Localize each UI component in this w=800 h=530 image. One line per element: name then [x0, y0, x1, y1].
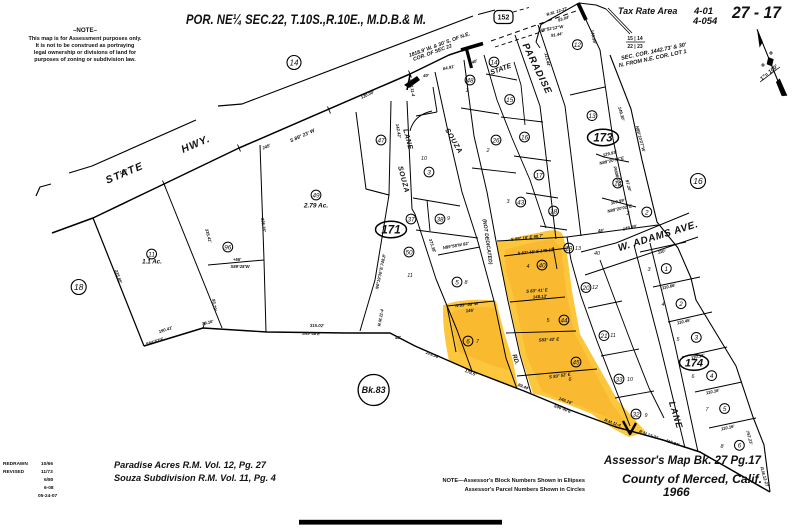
svg-text:40: 40	[594, 251, 600, 257]
svg-text:5: 5	[723, 406, 727, 413]
svg-text:8: 8	[721, 444, 724, 450]
svg-text:Bk.83: Bk.83	[362, 385, 386, 395]
svg-text:37: 37	[407, 216, 415, 223]
svg-text:Assessor's Map Bk. 27 Pg.17: Assessor's Map Bk. 27 Pg.17	[603, 453, 762, 467]
svg-text:12: 12	[574, 42, 582, 49]
svg-text:S89°28'W: S89°28'W	[230, 264, 250, 269]
svg-text:47: 47	[377, 137, 385, 144]
svg-text:315.02': 315.02'	[310, 323, 325, 328]
svg-text:3: 3	[648, 267, 651, 273]
svg-text:–NOTE–: –NOTE–	[73, 27, 98, 34]
svg-text:17: 17	[535, 172, 543, 179]
svg-text:16: 16	[693, 176, 703, 186]
svg-text:1: 1	[665, 266, 669, 273]
svg-text:2: 2	[486, 148, 490, 154]
svg-text:33: 33	[615, 376, 623, 383]
svg-text:173: 173	[593, 133, 613, 145]
svg-text:It is not to be construed as p: It is not to be construed as portraying	[36, 43, 135, 49]
svg-text:22 | 23: 22 | 23	[627, 44, 643, 50]
svg-text:40': 40'	[422, 73, 430, 78]
svg-text:43: 43	[517, 199, 525, 206]
svg-text:13: 13	[588, 113, 596, 120]
svg-text:9: 9	[645, 413, 648, 419]
svg-text:15: 15	[506, 97, 514, 104]
svg-text:21: 21	[599, 333, 608, 340]
svg-text:6/80: 6/80	[44, 477, 54, 483]
svg-text:26: 26	[491, 137, 500, 144]
svg-text:50: 50	[405, 249, 413, 256]
svg-text:4: 4	[662, 302, 665, 308]
svg-text:NOTE—Assessor's Block Numbers: NOTE—Assessor's Block Numbers Shown in E…	[443, 478, 585, 484]
svg-text:15 | 14: 15 | 14	[627, 36, 643, 42]
svg-text:2: 2	[626, 211, 630, 217]
svg-text:5: 5	[455, 279, 459, 286]
svg-text:Assessor's Parcel Numbers Show: Assessor's Parcel Numbers Shown in Circl…	[465, 487, 585, 493]
svg-text:Souza Subdivision R.M. Vol.: Souza Subdivision R.M. Vol. 11, Pg. 4	[114, 473, 276, 483]
svg-text:48: 48	[466, 77, 474, 84]
svg-text:13: 13	[575, 246, 581, 252]
svg-text:REDRAWN: REDRAWN	[3, 461, 28, 467]
svg-text:2: 2	[678, 301, 683, 308]
svg-text:2: 2	[644, 209, 649, 216]
svg-text:32: 32	[632, 411, 640, 418]
svg-text:POR. NE¼ SEC.22, T.10S.,R.10E.: POR. NE¼ SEC.22, T.10S.,R.10E., M.D.B.& …	[186, 11, 426, 27]
svg-text:4: 4	[710, 373, 714, 380]
svg-text:3: 3	[427, 169, 431, 176]
svg-text:40: 40	[538, 262, 546, 269]
svg-text:10/66: 10/66	[41, 461, 53, 467]
svg-text:6: 6	[738, 443, 742, 450]
svg-text:1: 1	[466, 88, 469, 94]
svg-text:11/73: 11/73	[41, 469, 53, 475]
svg-text:Paradise Acres R.M. Vol. 12,: Paradise Acres R.M. Vol. 12, Pg. 27	[114, 460, 267, 470]
svg-text:County of Merced, Calif.: County of Merced, Calif.	[622, 472, 762, 486]
svg-text:48': 48'	[394, 335, 402, 340]
svg-text:legal ownership or divisions o: legal ownership or divisions of land for	[34, 50, 137, 56]
svg-text:20: 20	[581, 285, 590, 292]
svg-text:05-24-07: 05-24-07	[38, 493, 58, 499]
svg-text:8: 8	[465, 280, 468, 286]
svg-text:This map is for Assessment pur: This map is for Assessment purposes only…	[28, 36, 142, 42]
svg-text:12: 12	[592, 285, 598, 291]
svg-text:1966: 1966	[663, 485, 690, 499]
svg-text:+55': +55'	[233, 257, 242, 262]
svg-text:10: 10	[627, 377, 633, 383]
svg-text:148.13': 148.13'	[533, 293, 548, 299]
svg-text:S49°48'E: S49°48'E	[302, 331, 320, 336]
svg-text:16: 16	[521, 134, 529, 141]
svg-text:1.1 Ac.: 1.1 Ac.	[142, 259, 162, 266]
svg-text:11: 11	[148, 251, 155, 258]
svg-text:6: 6	[692, 374, 695, 380]
svg-text:49: 49	[312, 192, 320, 199]
svg-text:6: 6	[569, 377, 572, 383]
svg-text:18: 18	[74, 282, 84, 292]
svg-text:27 - 17: 27 - 17	[731, 4, 782, 22]
svg-text:38: 38	[436, 216, 444, 223]
svg-text:3: 3	[695, 335, 699, 342]
svg-text:6-08: 6-08	[44, 485, 54, 491]
svg-text:REVISED: REVISED	[3, 469, 25, 475]
svg-text:9: 9	[447, 216, 450, 222]
svg-text:2.79 Ac.: 2.79 Ac.	[303, 203, 329, 210]
svg-text:10: 10	[421, 156, 427, 162]
svg-text:44: 44	[560, 317, 568, 324]
svg-text:171: 171	[381, 225, 400, 237]
svg-text:96: 96	[224, 244, 232, 251]
svg-text:4: 4	[527, 264, 530, 270]
svg-text:146': 146'	[466, 307, 476, 313]
svg-text:45: 45	[572, 359, 580, 366]
svg-text:14: 14	[290, 58, 299, 67]
svg-text:Tax Rate Area: Tax Rate Area	[618, 6, 677, 16]
svg-text:18: 18	[550, 208, 558, 215]
svg-text:152: 152	[498, 15, 510, 22]
svg-text:11: 11	[407, 273, 413, 279]
svg-text:19: 19	[565, 245, 573, 252]
svg-text:4-054: 4-054	[692, 16, 718, 27]
svg-text:6: 6	[466, 338, 470, 345]
svg-text:11: 11	[610, 333, 616, 339]
svg-text:3: 3	[507, 199, 510, 205]
svg-text:purposes of zoning or subdivis: purposes of zoning or subdivision law.	[34, 57, 136, 63]
svg-text:14: 14	[490, 59, 498, 66]
